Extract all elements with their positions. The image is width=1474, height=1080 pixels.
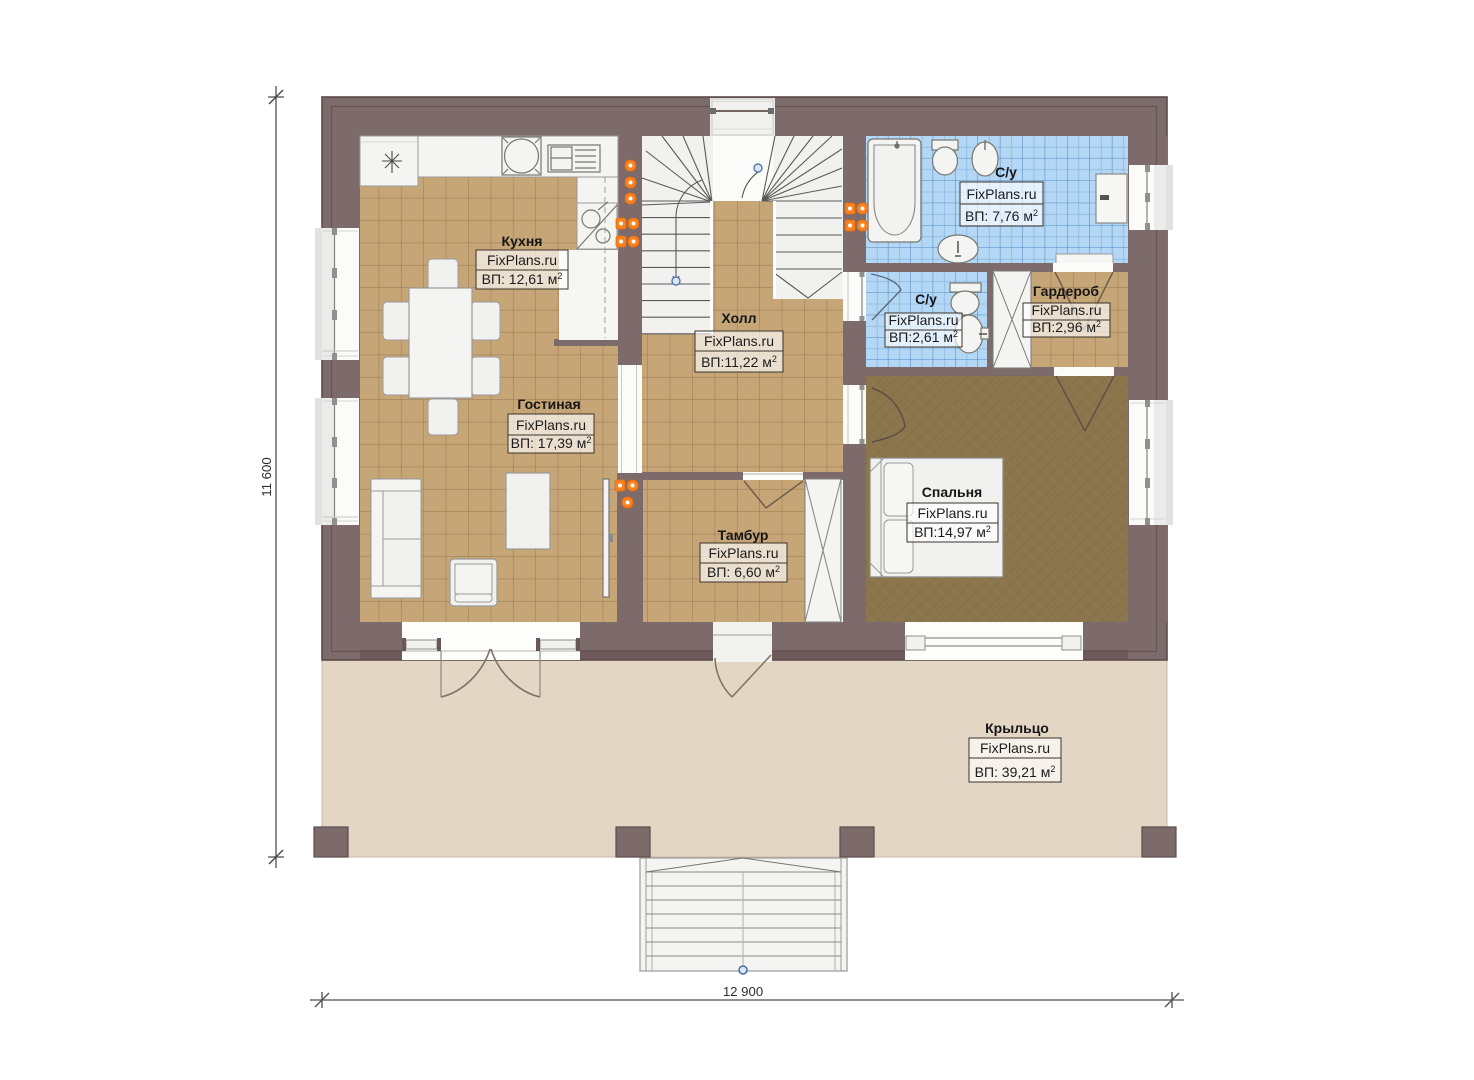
svg-text:ВП: 7,76 м2: ВП: 7,76 м2 <box>965 208 1038 224</box>
svg-text:FixPlans.ru: FixPlans.ru <box>708 545 778 561</box>
svg-text:ВП: 39,21 м2: ВП: 39,21 м2 <box>975 764 1056 780</box>
svg-text:ВП: 6,60 м2: ВП: 6,60 м2 <box>707 564 780 580</box>
svg-text:Кухня: Кухня <box>502 233 543 249</box>
svg-text:ВП: 12,61 м2: ВП: 12,61 м2 <box>482 271 563 287</box>
svg-text:11 600: 11 600 <box>259 457 274 496</box>
svg-text:С/у: С/у <box>995 164 1017 180</box>
svg-text:Гардероб: Гардероб <box>1033 283 1100 299</box>
svg-text:FixPlans.ru: FixPlans.ru <box>1031 302 1101 318</box>
svg-text:ВП: 17,39 м2: ВП: 17,39 м2 <box>511 435 592 451</box>
svg-text:Тамбур: Тамбур <box>718 527 769 543</box>
svg-text:Гостиная: Гостиная <box>517 396 580 412</box>
svg-text:ВП:2,96 м2: ВП:2,96 м2 <box>1032 319 1101 335</box>
svg-text:Холл: Холл <box>721 310 756 326</box>
svg-text:FixPlans.ru: FixPlans.ru <box>980 740 1050 756</box>
svg-text:FixPlans.ru: FixPlans.ru <box>917 505 987 521</box>
svg-text:FixPlans.ru: FixPlans.ru <box>704 333 774 349</box>
svg-text:FixPlans.ru: FixPlans.ru <box>516 417 586 433</box>
svg-text:Спальня: Спальня <box>922 484 982 500</box>
svg-text:ВП:14,97 м2: ВП:14,97 м2 <box>914 524 991 540</box>
svg-text:Крыльцо: Крыльцо <box>985 720 1049 736</box>
svg-text:ВП:2,61 м2: ВП:2,61 м2 <box>889 329 958 345</box>
svg-text:FixPlans.ru: FixPlans.ru <box>966 186 1036 202</box>
svg-text:12 900: 12 900 <box>723 984 763 999</box>
svg-text:ВП:11,22 м2: ВП:11,22 м2 <box>701 354 777 370</box>
svg-text:FixPlans.ru: FixPlans.ru <box>888 312 958 328</box>
svg-text:FixPlans.ru: FixPlans.ru <box>487 252 557 268</box>
svg-text:С/у: С/у <box>915 291 937 307</box>
